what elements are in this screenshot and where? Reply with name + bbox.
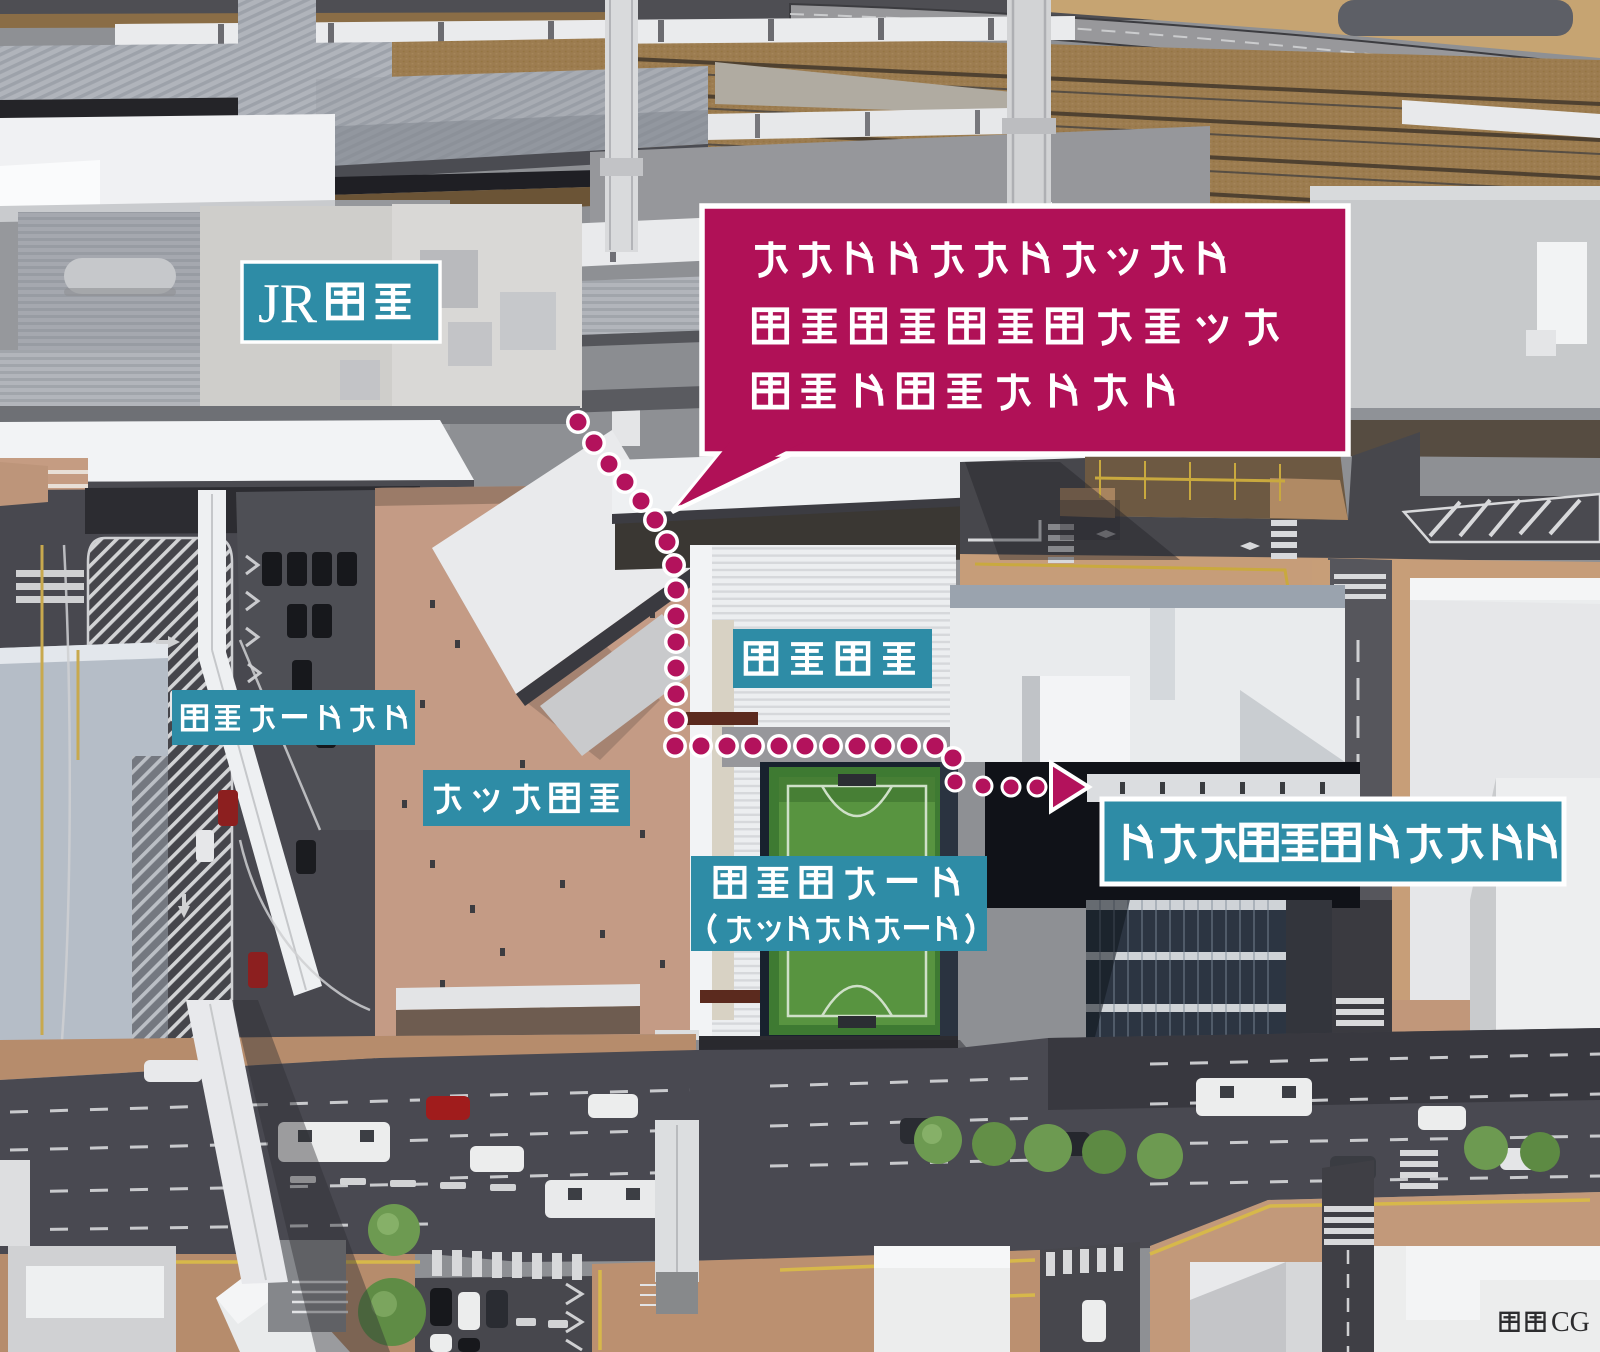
svg-text:CG: CG — [1551, 1307, 1590, 1338]
svg-text:JR: JR — [258, 273, 318, 335]
